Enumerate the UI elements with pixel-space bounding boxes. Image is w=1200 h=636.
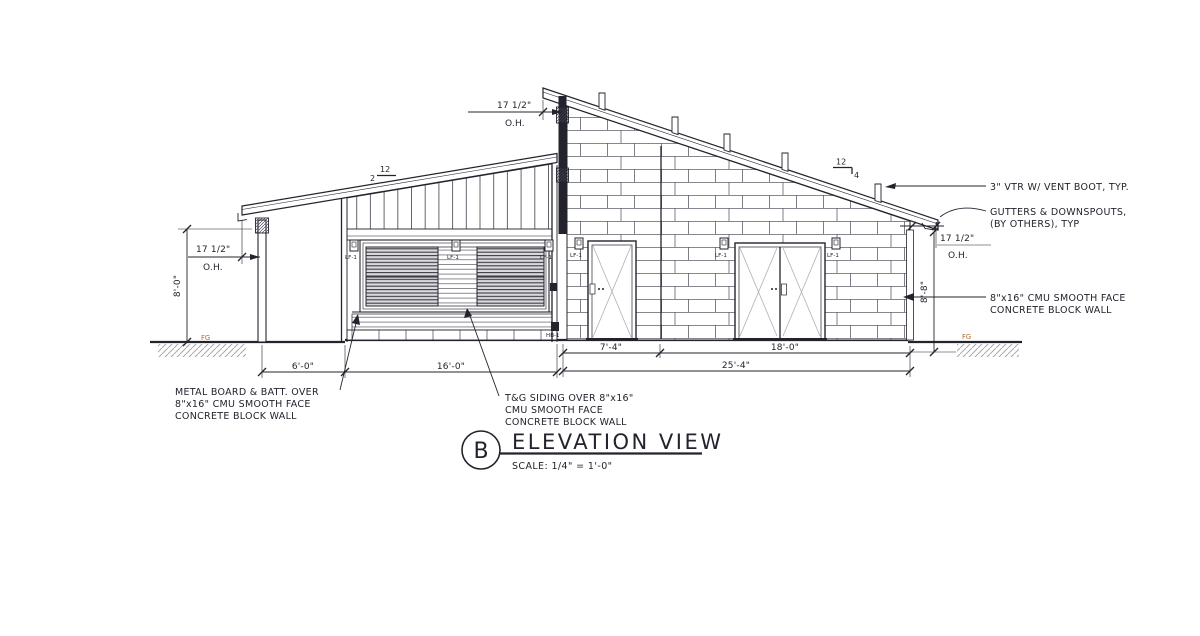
hose-bib xyxy=(551,322,559,331)
porch-post xyxy=(258,220,266,342)
note-text: 8"x16" CMU SMOOTH FACE xyxy=(990,293,1126,304)
louver-window-right xyxy=(477,247,544,306)
elevation-drawing-sheet: FG FG HB-1 xyxy=(0,0,1200,636)
light-fixture-tag: LF-1 xyxy=(540,255,552,261)
note-text: CONCRETE BLOCK WALL xyxy=(505,417,627,428)
note-text: T&G SIDING OVER 8"x16" xyxy=(504,393,634,404)
drawing-title: ELEVATION VIEW xyxy=(512,430,724,454)
double-door-handle xyxy=(782,284,787,295)
vent-boot-icon xyxy=(599,93,605,110)
door-handle xyxy=(590,284,595,294)
louver-window-left xyxy=(366,247,438,306)
dim-text: 16'-0" xyxy=(437,362,465,372)
roof-slope-left: 12 2 xyxy=(370,165,396,183)
note-cmu-wall: 8"x16" CMU SMOOTH FACE CONCRETE BLOCK WA… xyxy=(903,293,1126,316)
note-text: CONCRETE BLOCK WALL xyxy=(990,305,1112,316)
light-fixture-tag: LF-1 xyxy=(827,253,839,259)
right-cmu-wall-section xyxy=(567,106,914,340)
vent-boot-icon xyxy=(672,117,678,135)
porch-beam-end xyxy=(256,218,269,233)
light-fixture-tag: LF-1 xyxy=(447,255,459,261)
slope-run-label: 12 xyxy=(380,165,390,174)
dim-text: 18'-0" xyxy=(771,343,799,353)
slope-run-label: 12 xyxy=(836,158,846,167)
note-text: 8"x16" CMU SMOOTH FACE xyxy=(175,399,311,410)
dim-text: O.H. xyxy=(203,263,223,273)
title-block: B ELEVATION VIEW SCALE: 1/4" = 1'-0" xyxy=(462,430,724,472)
dim-text: 6'-0" xyxy=(292,362,314,372)
note-vent-boot: 3" VTR W/ VENT BOOT, TYP. xyxy=(885,182,1129,193)
dim-overhang-top: 17 1/2" O.H. xyxy=(468,100,562,129)
base-block-course xyxy=(347,330,557,340)
note-text: CMU SMOOTH FACE xyxy=(505,405,603,416)
note-metal-board: METAL BOARD & BATT. OVER 8"x16" CMU SMOO… xyxy=(175,314,360,422)
dim-text: 8'-0" xyxy=(173,275,183,297)
dim-row-right: 7'-4" 18'-0" 25'-4" xyxy=(559,343,914,377)
dim-text: O.H. xyxy=(948,251,968,261)
grade-hatch-right xyxy=(957,344,1019,357)
light-fixture-tag: LF-1 xyxy=(345,255,357,261)
hose-bib-tag: HB-1 xyxy=(546,333,560,339)
dim-text: 7'-4" xyxy=(600,343,622,353)
dim-text: 17 1/2" xyxy=(497,101,531,111)
porch xyxy=(256,218,269,342)
slope-rise-label: 2 xyxy=(370,174,375,183)
detail-letter: B xyxy=(473,439,488,464)
dim-row-left: 6'-0" 16'-0" xyxy=(258,344,561,378)
tg-siding-lower xyxy=(352,314,552,330)
grade-hatch-left xyxy=(158,344,246,357)
finish-grade-label-left: FG xyxy=(201,334,210,342)
light-fixture-tag: LF-1 xyxy=(715,253,727,259)
elevation-view-drawing: FG FG HB-1 xyxy=(0,0,1200,636)
note-gutters: GUTTERS & DOWNSPOUTS, (BY OTHERS), TYP xyxy=(940,207,1126,230)
light-fixture-tag: LF-1 xyxy=(570,253,582,259)
dim-text: 25'-4" xyxy=(722,361,750,371)
dim-text: 17 1/2" xyxy=(940,234,974,244)
dim-height-right: 8'-8" xyxy=(910,228,956,356)
note-text: (BY OTHERS), TYP xyxy=(990,219,1079,230)
dim-text: 17 1/2" xyxy=(196,245,230,255)
downspout xyxy=(907,230,914,340)
dim-text: 8'-8" xyxy=(920,281,930,303)
header-band xyxy=(347,229,552,240)
slope-rise-label: 4 xyxy=(854,171,859,180)
note-text: METAL BOARD & BATT. OVER xyxy=(175,387,319,398)
vent-boot-icon xyxy=(724,134,730,152)
finish-grade-label-right: FG xyxy=(962,333,971,341)
double-door xyxy=(733,243,827,340)
beam-end-upper xyxy=(557,107,569,123)
note-text: GUTTERS & DOWNSPOUTS, xyxy=(990,207,1126,218)
note-text: 3" VTR W/ VENT BOOT, TYP. xyxy=(990,182,1129,193)
single-door xyxy=(586,241,638,340)
note-text: CONCRETE BLOCK WALL xyxy=(175,411,297,422)
dim-text: O.H. xyxy=(505,119,525,129)
receptacle-box xyxy=(550,283,557,291)
drawing-scale: SCALE: 1/4" = 1'-0" xyxy=(512,461,612,472)
dim-height-left: 8'-0" xyxy=(173,225,252,346)
beam-end-lower xyxy=(557,168,569,182)
vent-boot-icon xyxy=(782,153,788,171)
vent-boot-icon xyxy=(875,184,881,203)
dim-overhang-left: 17 1/2" O.H. xyxy=(188,220,260,273)
roof-slope-right: 12 4 xyxy=(833,158,859,181)
